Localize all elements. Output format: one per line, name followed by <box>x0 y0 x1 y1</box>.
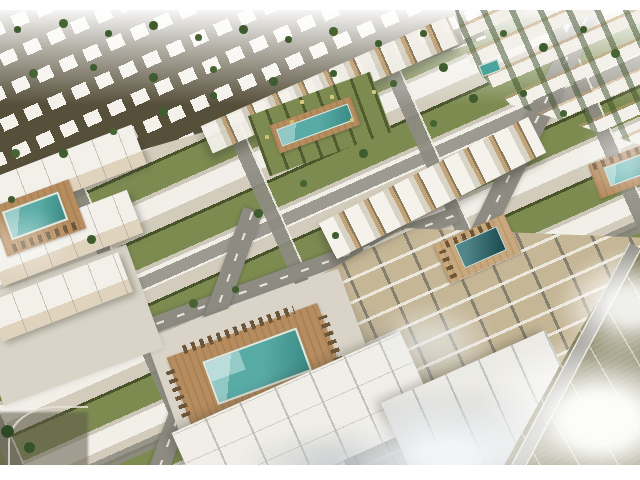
top-white-margin <box>0 0 640 10</box>
bottom-white-margin <box>0 465 640 480</box>
cloud <box>368 300 498 385</box>
aerial-resort-render <box>0 0 640 480</box>
